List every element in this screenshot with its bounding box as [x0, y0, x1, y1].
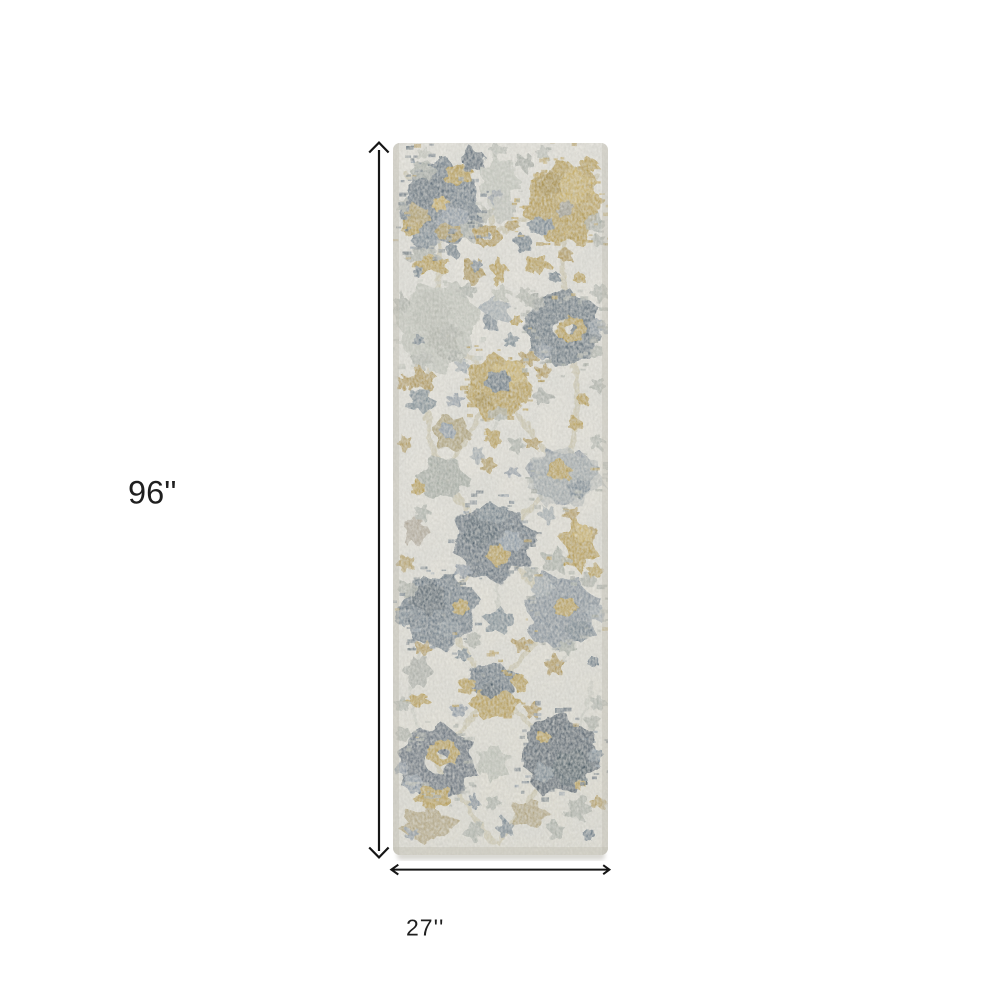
- svg-text:96'': 96'': [128, 475, 177, 511]
- svg-text:27'': 27'': [406, 915, 444, 941]
